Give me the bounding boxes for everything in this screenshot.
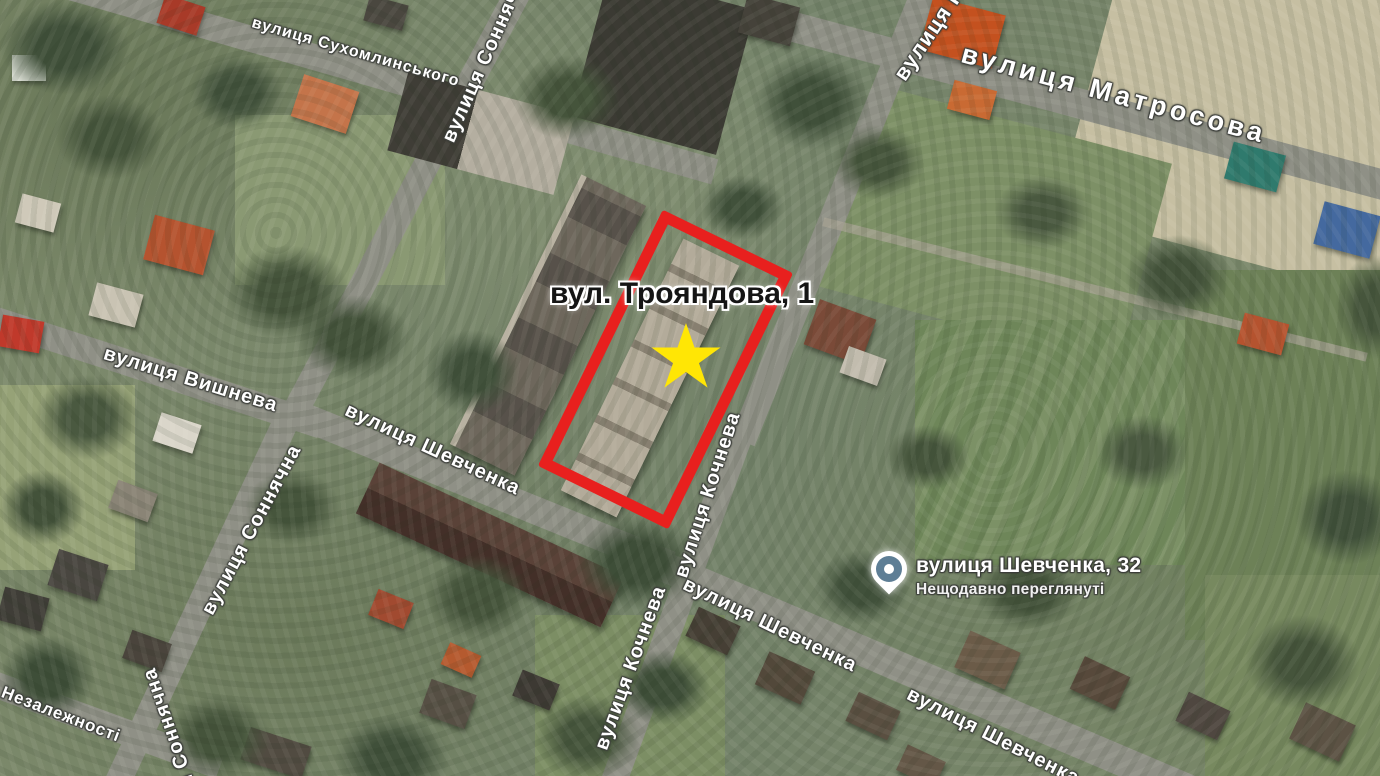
saved-place-marker[interactable]: вулиця Шевченка, 32 Нещодавно переглянут…	[868, 548, 1141, 600]
place-subtitle: Нещодавно переглянуті	[916, 581, 1141, 599]
tree-cluster	[1095, 415, 1190, 490]
tree-cluster	[0, 470, 85, 545]
tree-cluster	[35, 375, 140, 460]
house	[0, 315, 44, 354]
place-title: вулиця Шевченка, 32	[916, 554, 1141, 578]
tree-cluster	[885, 425, 970, 490]
place-texts: вулиця Шевченка, 32 Нещодавно переглянут…	[916, 548, 1141, 599]
highlight-address-label: вул. Трояндова, 1	[550, 277, 802, 311]
tree-cluster	[425, 330, 520, 415]
tree-cluster	[830, 125, 925, 200]
satellite-map[interactable]: вулиця Сухомлинського вулиця Соннячна ву…	[0, 0, 1380, 776]
tree-cluster	[190, 55, 285, 130]
tree-cluster	[55, 95, 165, 180]
tree-cluster	[995, 175, 1090, 250]
tree-cluster	[1125, 235, 1230, 320]
tree-cluster	[0, 0, 130, 95]
place-pin-icon	[868, 548, 910, 600]
tree-cluster	[425, 555, 530, 640]
tree-cluster	[295, 295, 410, 380]
tree-cluster	[1245, 615, 1360, 710]
pin-dot	[884, 564, 894, 574]
tree-cluster	[515, 55, 620, 140]
tree-cluster	[700, 175, 785, 240]
